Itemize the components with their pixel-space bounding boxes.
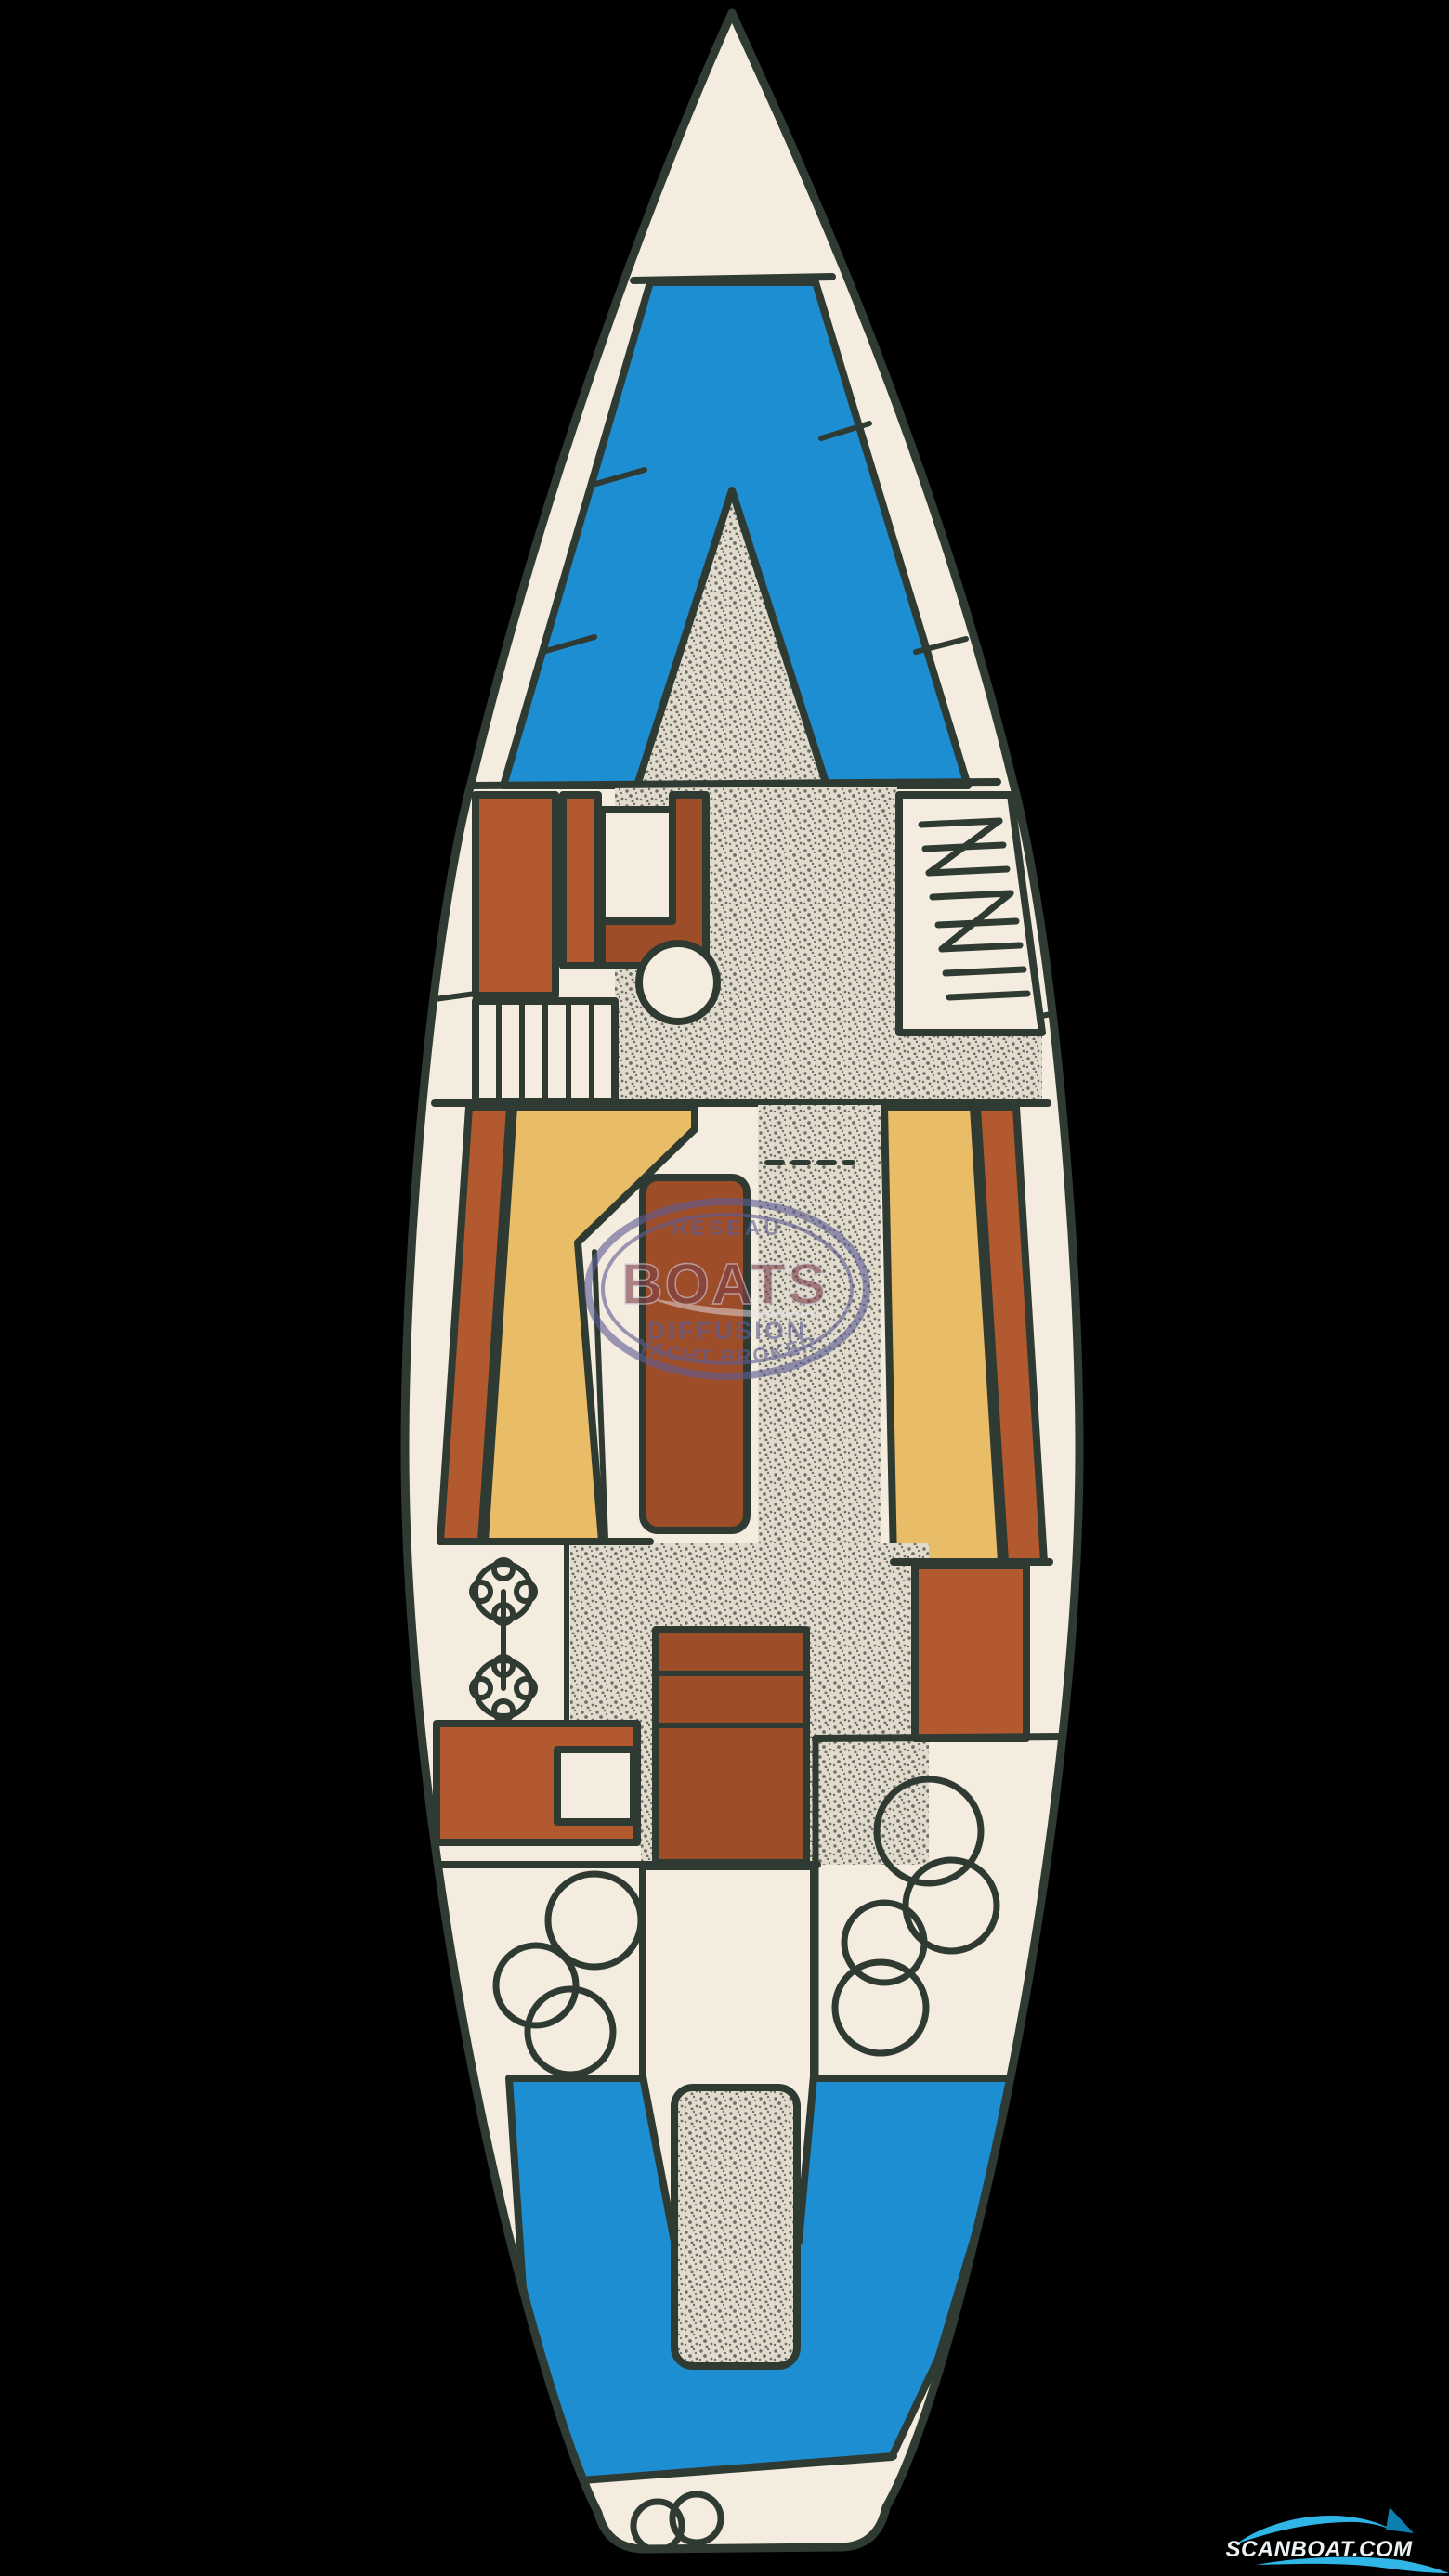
logo-sail-icon [1386, 2507, 1414, 2533]
starboard-bench-front-line [816, 1737, 1068, 1738]
quarter-berth [915, 1566, 1026, 1738]
listing-photo-canvas: RESEAU BOATS DIFFUSION YACHT BROKER SCAN… [0, 0, 1449, 2576]
watermark-reseau-text: RESEAU [672, 1216, 783, 1240]
forward-bulkhead-line [468, 782, 998, 786]
bow-chord-line [633, 277, 832, 280]
washbasin-circle [639, 943, 717, 1021]
boat-floorplan-diagram: RESEAU BOATS DIFFUSION YACHT BROKER SCAN… [0, 0, 1449, 2576]
companionway-steps [656, 1630, 806, 1863]
tiller-well-stipple [674, 2088, 797, 2366]
head-worktop [602, 810, 672, 921]
watermark-boats-text: BOATS [621, 1253, 828, 1317]
scanboat-logo: SCANBOAT.COM [1225, 2507, 1449, 2573]
head-locker-2 [563, 795, 598, 966]
head-locker [476, 795, 555, 995]
galley-sink [557, 1750, 633, 1822]
